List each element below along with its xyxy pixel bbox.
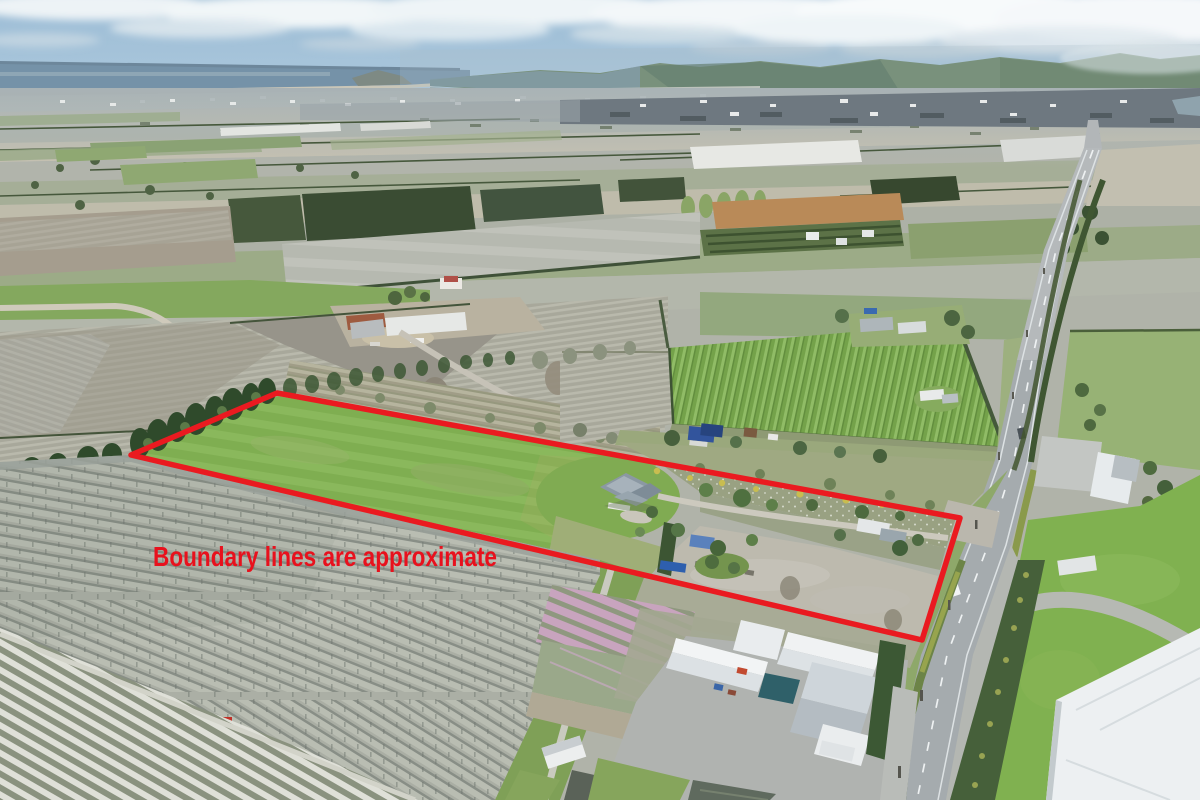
svg-text:Boundary lines are approximate: Boundary lines are approximate xyxy=(153,541,497,572)
